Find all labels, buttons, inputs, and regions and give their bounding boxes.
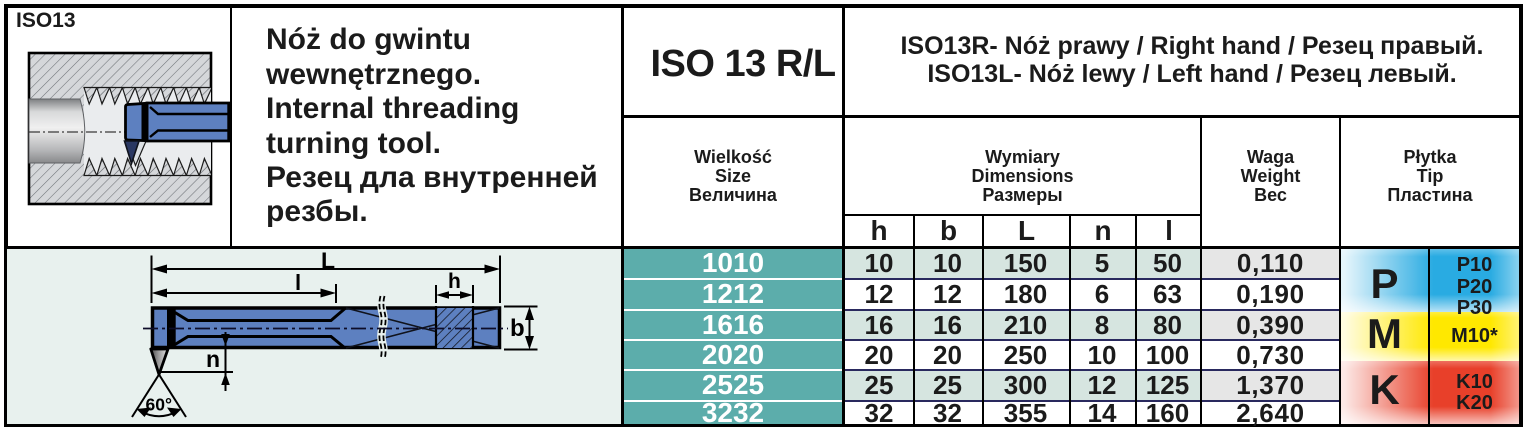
- svg-text:n: n: [206, 346, 220, 372]
- svg-text:b: b: [510, 315, 525, 342]
- svg-text:l: l: [295, 270, 301, 295]
- svg-text:L: L: [321, 249, 335, 274]
- svg-text:h: h: [448, 270, 461, 293]
- svg-text:60°: 60°: [146, 395, 172, 415]
